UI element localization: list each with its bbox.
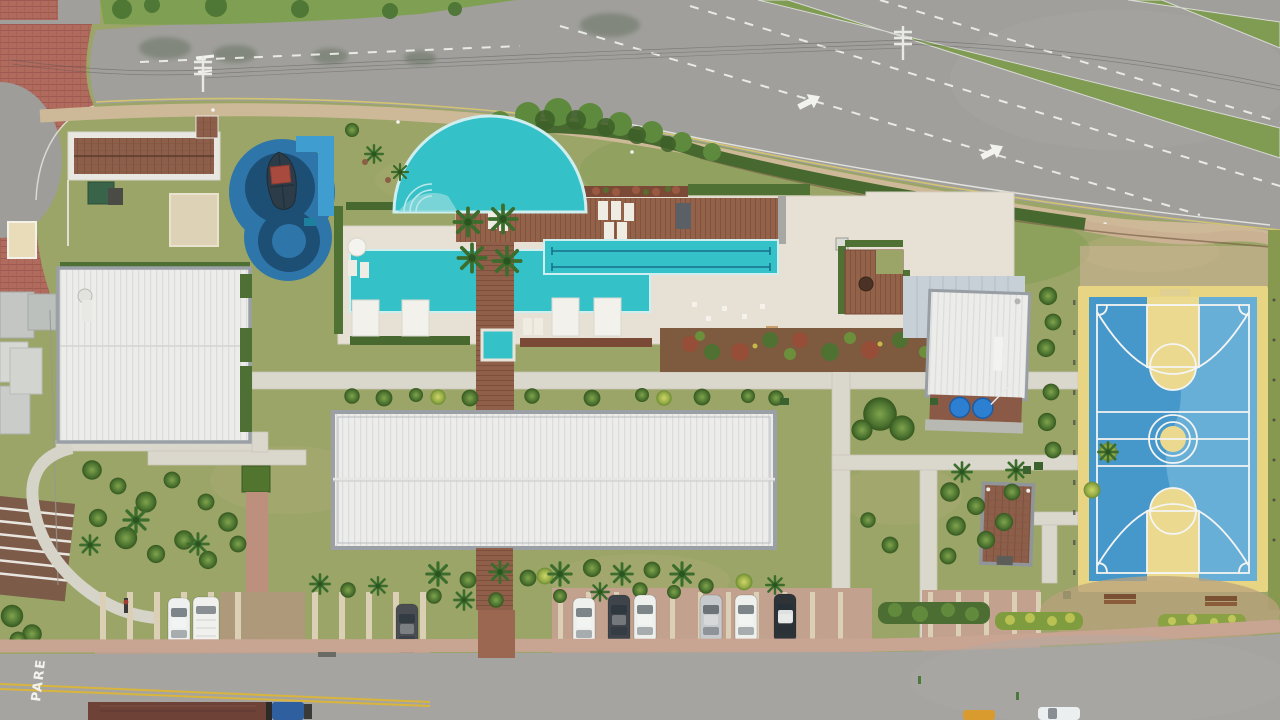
parked-car (608, 595, 630, 643)
aerial-scene: PARE (0, 0, 1280, 720)
brick-path (246, 492, 268, 592)
bench (1205, 596, 1237, 606)
lap-pool (544, 240, 778, 274)
wall-planters (240, 274, 252, 432)
ship-cabin (270, 165, 291, 184)
white-car (1038, 707, 1080, 720)
storm-grate (318, 652, 336, 657)
left-hall (58, 262, 252, 442)
truck (88, 702, 312, 720)
motorcycle (124, 598, 129, 613)
basketball-court (1073, 286, 1268, 592)
dirt-band (1080, 246, 1280, 286)
parked-car (634, 595, 656, 643)
parked-car (735, 595, 757, 643)
canopy (170, 194, 218, 246)
parked-car (168, 598, 190, 646)
plunge-pool (482, 330, 514, 360)
water-tank (972, 398, 993, 419)
parked-car (573, 598, 595, 646)
guardhouse-roof (8, 222, 36, 258)
support-roof (926, 290, 1030, 399)
parked-car (700, 595, 722, 643)
deck-mat (676, 203, 691, 229)
yellow-car (963, 710, 995, 720)
hedge-planter (242, 466, 270, 492)
umbrella (348, 238, 366, 256)
right-edge-strip (1268, 230, 1280, 610)
aerial-photo: PARE (0, 0, 1280, 720)
main-hall (333, 412, 775, 548)
fire-pit (859, 277, 873, 291)
bench (1104, 594, 1136, 604)
brick-crossing (478, 610, 515, 658)
water-tank (949, 397, 970, 418)
